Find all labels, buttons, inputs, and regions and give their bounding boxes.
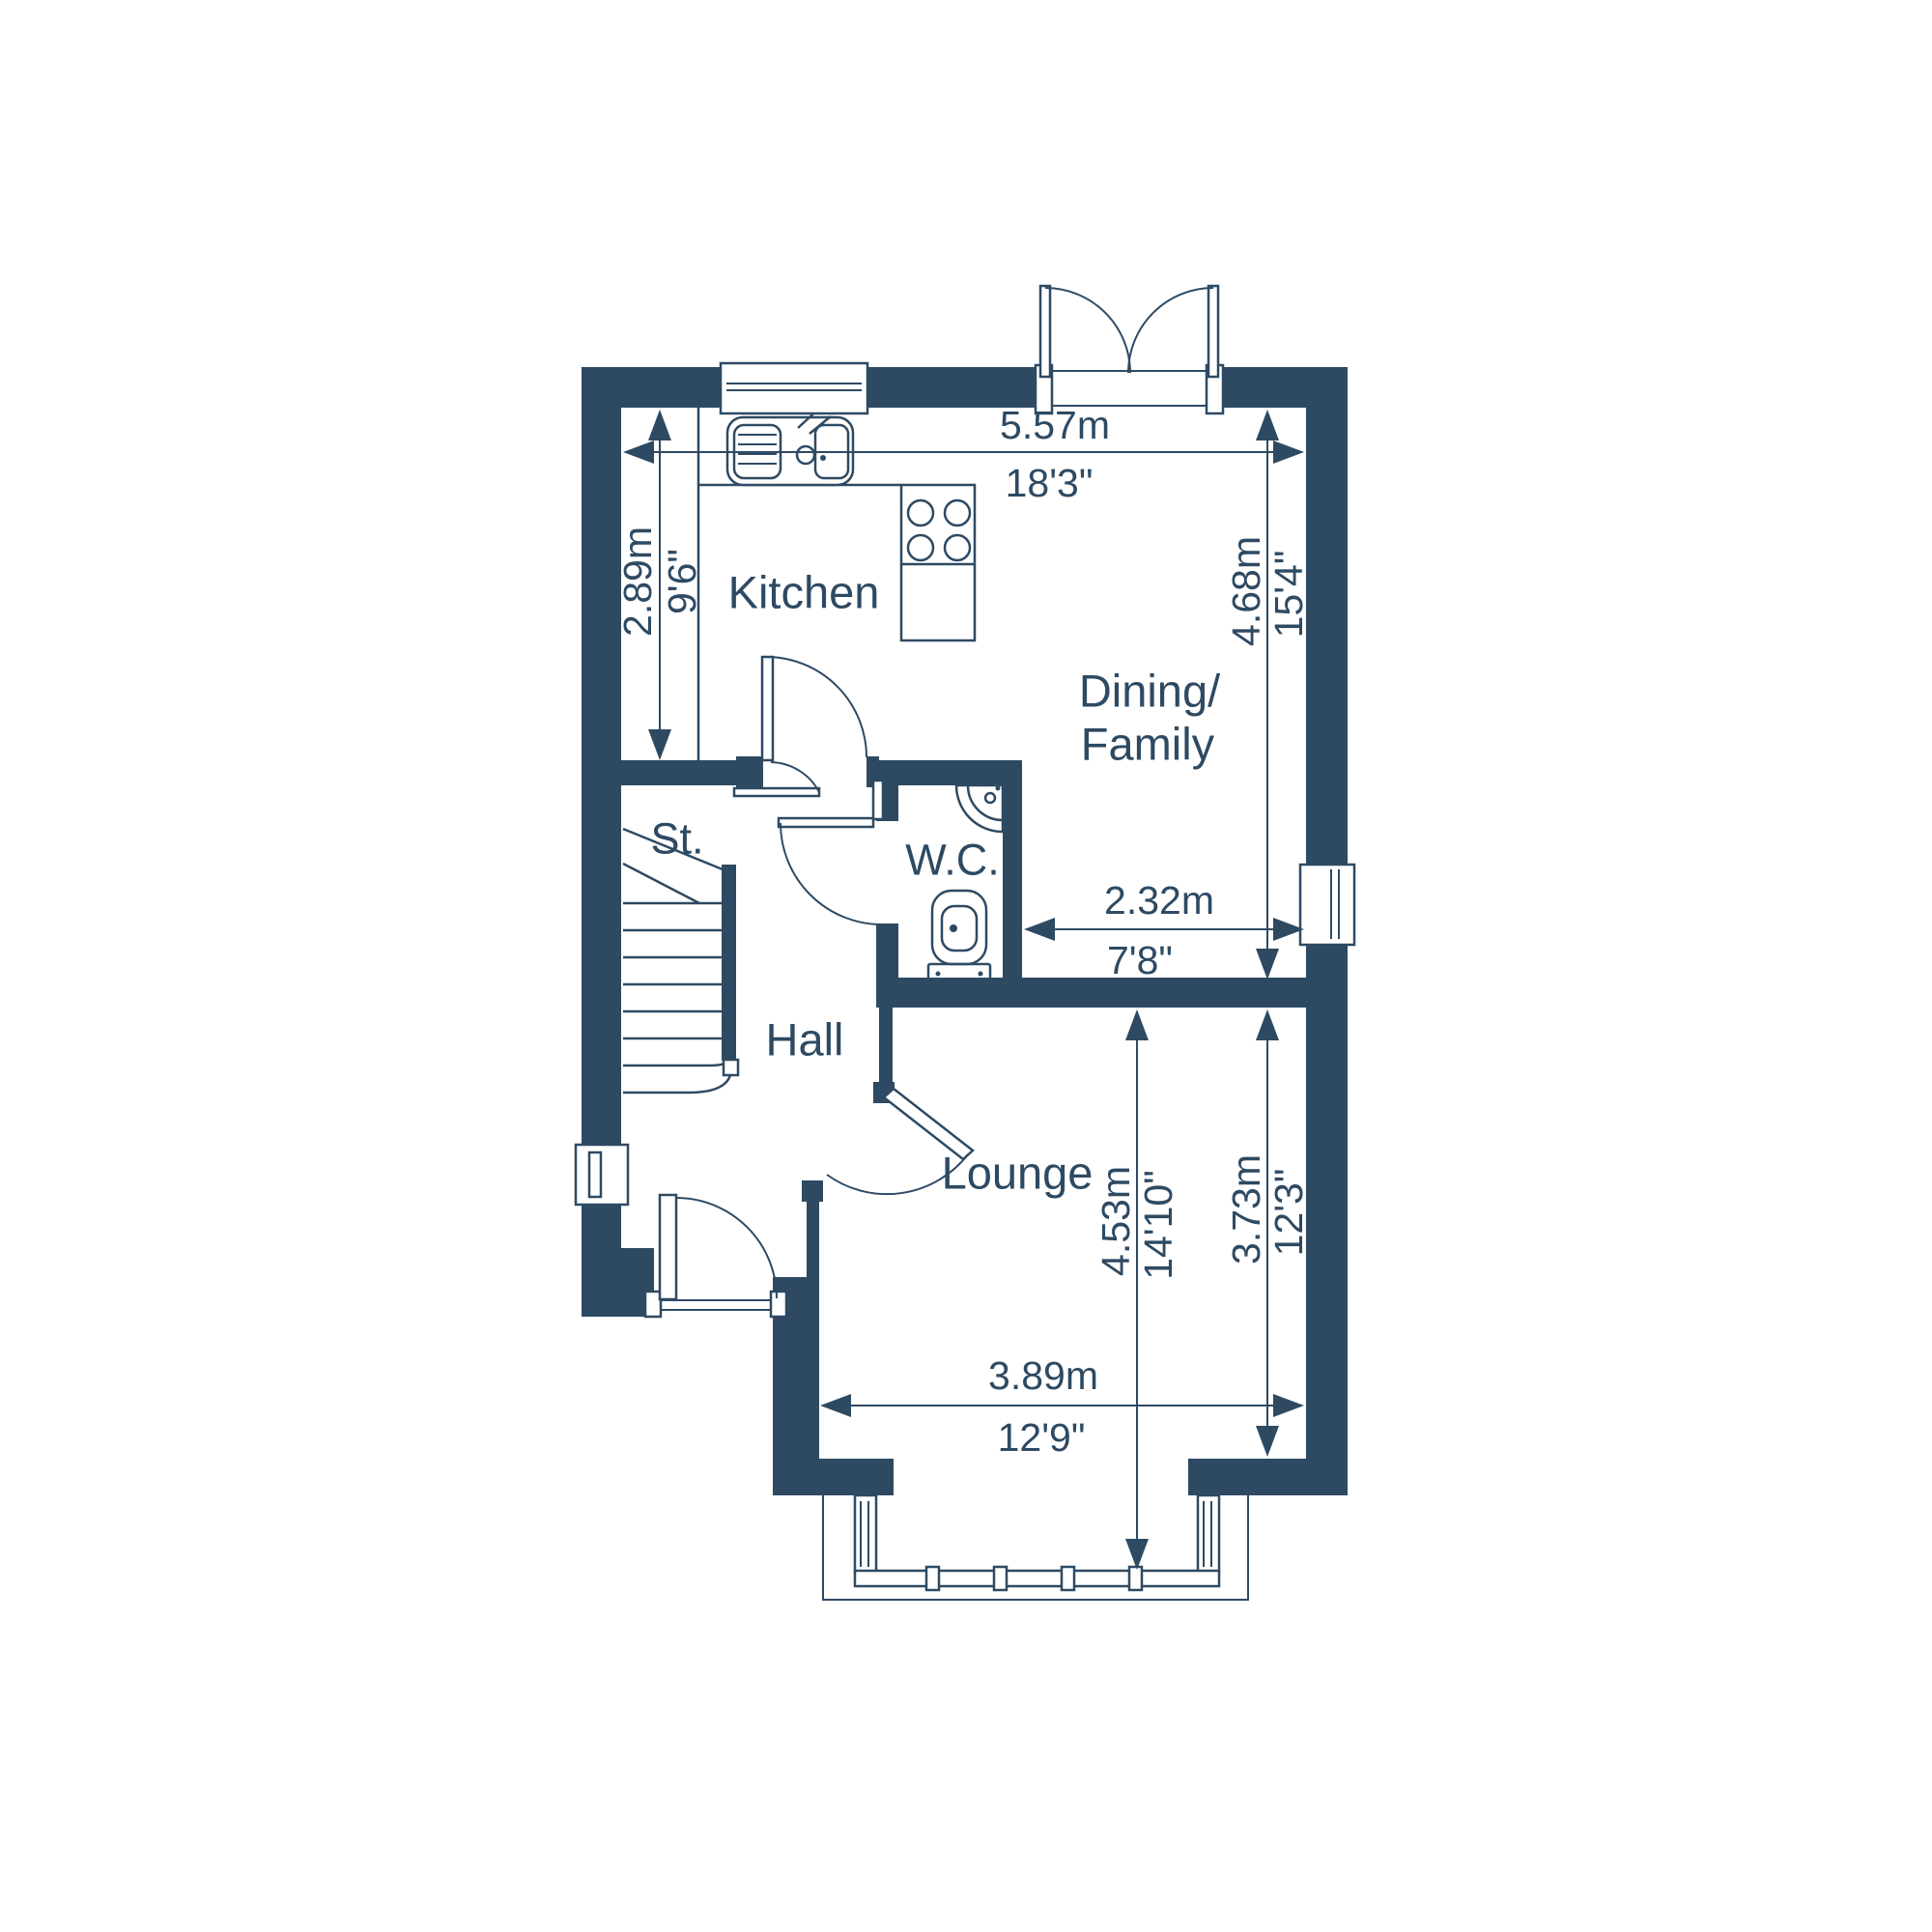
dim-overall-width <box>623 440 1304 464</box>
sink-icon <box>727 407 853 485</box>
kitchen-door <box>762 657 867 760</box>
wc-door <box>779 781 883 924</box>
stair-newel <box>724 1060 738 1075</box>
hob-icon <box>908 500 970 560</box>
french-doors <box>1036 286 1223 413</box>
room-label-hall: Hall <box>766 1014 844 1065</box>
dim-label-lounge-bay-depth-m: 4.53m <box>1094 1166 1138 1276</box>
room-label-lounge: Lounge <box>942 1148 1094 1199</box>
room-label-dining-1: Dining/ <box>1079 666 1221 717</box>
room-label-dining-2: Family <box>1081 719 1215 770</box>
dim-label-overall-width-ft: 18'3" <box>1006 461 1094 505</box>
dim-label-lounge-depth-m: 3.73m <box>1224 1154 1268 1264</box>
room-label-store: St. <box>650 814 703 864</box>
front-door <box>645 1195 786 1317</box>
room-label-kitchen: Kitchen <box>728 567 880 618</box>
dim-label-overall-width-m: 5.57m <box>1000 403 1110 447</box>
toilet-icon <box>928 891 990 981</box>
dining-window <box>1300 865 1354 945</box>
wc-basin-icon <box>956 785 1003 832</box>
dim-label-lounge-bay-depth-ft: 14'10" <box>1136 1170 1180 1280</box>
dim-label-lounge-width-m: 3.89m <box>988 1353 1098 1398</box>
room-label-wc: W.C. <box>905 836 1000 885</box>
dim-label-kitchen-depth-ft: 9'6" <box>660 549 704 614</box>
dim-dining-depth <box>1256 410 1279 980</box>
hall-window <box>576 1145 628 1205</box>
dim-lounge-bay-depth <box>1125 1009 1149 1570</box>
dim-label-nook-width-ft: 7'8" <box>1107 938 1173 982</box>
dim-label-dining-depth-m: 4.68m <box>1224 536 1268 646</box>
dim-label-lounge-depth-ft: 12'3" <box>1266 1169 1311 1257</box>
floor-plan-svg: Kitchen Dining/ Family St. W.C. Hall Lou… <box>0 0 1932 1932</box>
bay-window <box>823 1495 1248 1600</box>
dim-label-nook-width-m: 2.32m <box>1104 878 1214 923</box>
kitchen-window <box>721 363 867 413</box>
staircase <box>623 829 738 1093</box>
dim-label-kitchen-depth-m: 2.89m <box>615 526 660 637</box>
floor-plan-page: Kitchen Dining/ Family St. W.C. Hall Lou… <box>0 0 1932 1932</box>
dim-label-lounge-width-ft: 12'9" <box>998 1415 1086 1460</box>
dim-label-dining-depth-ft: 15'4" <box>1266 551 1311 639</box>
